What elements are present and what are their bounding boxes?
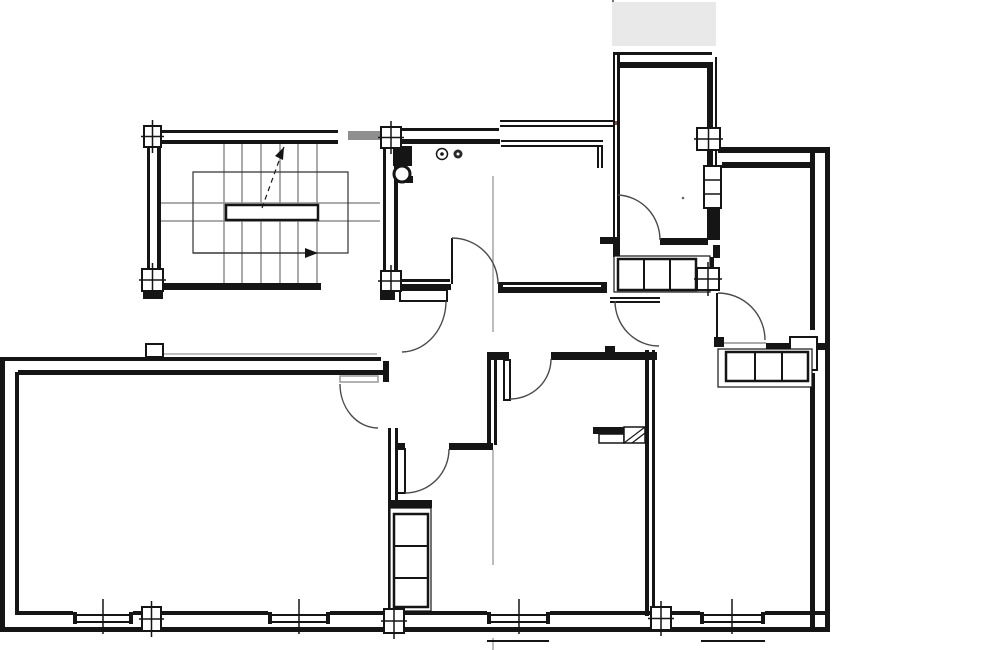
wall-segment	[160, 611, 268, 615]
scan-artifact	[682, 197, 685, 200]
door-lintel	[348, 131, 382, 140]
wall-segment	[397, 128, 499, 131]
wall-segment	[722, 162, 814, 168]
door-leaf	[400, 290, 447, 301]
wall-segment	[613, 243, 620, 257]
wall-segment	[498, 282, 607, 285]
wall-segment	[395, 139, 500, 144]
wall-segment	[551, 352, 657, 360]
wall-segment	[613, 52, 712, 55]
wall-segment	[133, 611, 142, 615]
chimney-notch	[146, 344, 163, 357]
wall-segment	[765, 611, 830, 615]
wall-segment	[550, 611, 652, 615]
window-sill	[487, 640, 549, 642]
wall-segment	[160, 283, 321, 290]
wall-segment	[613, 55, 615, 240]
wall-segment	[18, 370, 388, 375]
floor-plan-canvas	[0, 0, 1000, 650]
wall-segment	[498, 282, 503, 293]
door-arc	[402, 301, 446, 352]
wall-segment	[397, 279, 450, 282]
door-hinge-stub	[605, 346, 615, 353]
wall-segment	[15, 372, 19, 615]
wall-segment	[0, 357, 381, 361]
wall-segment	[383, 361, 389, 382]
window-post	[326, 612, 330, 624]
wall-segment	[494, 352, 497, 445]
wall-segment	[487, 352, 491, 445]
stove-burner-dot	[457, 153, 460, 156]
flue-fixture	[593, 427, 624, 434]
door-arc	[405, 449, 449, 493]
flue-fixture	[599, 434, 624, 443]
window-post	[268, 612, 272, 624]
wall-segment	[147, 140, 338, 144]
wall-segment	[498, 287, 607, 293]
radiator-inner	[394, 514, 428, 607]
window-frame	[704, 166, 721, 208]
radiator-top-plate	[391, 500, 432, 508]
wall-segment	[617, 55, 620, 240]
wall-segment	[147, 130, 338, 133]
door-arc	[340, 384, 378, 428]
wall-segment	[0, 357, 5, 632]
stair-arrow-head	[305, 248, 318, 258]
stove-burner-dot	[440, 152, 444, 156]
wall-segment	[652, 350, 655, 616]
wall-segment	[330, 611, 385, 615]
door-leaf	[504, 360, 510, 400]
wall-segment	[645, 350, 649, 616]
radiator-inner	[618, 259, 696, 290]
radiator-inner	[726, 352, 808, 381]
window-post	[700, 612, 704, 624]
door-arc	[615, 301, 659, 346]
door-arc	[618, 195, 660, 240]
wall-segment	[810, 373, 815, 630]
window-post	[761, 612, 765, 624]
wall-segment	[380, 291, 395, 300]
door-leaf	[397, 449, 405, 493]
wall-segment	[147, 143, 150, 273]
scan-artifact	[612, 2, 716, 46]
wall-segment	[0, 627, 830, 632]
wall-segment	[810, 153, 815, 330]
door-lintel	[340, 376, 378, 382]
door-arc	[510, 359, 551, 399]
window-sill	[701, 640, 765, 642]
wall-segment	[19, 611, 73, 615]
wall-segment	[672, 611, 700, 615]
floor-plan-page	[0, 0, 1000, 650]
window-post	[73, 612, 77, 624]
wall-segment	[718, 147, 830, 153]
wall-segment	[825, 147, 830, 632]
wall-segment	[660, 238, 708, 245]
window-post	[546, 612, 550, 624]
door-arc	[718, 293, 765, 340]
wall-segment	[713, 245, 720, 258]
window-post	[129, 612, 133, 624]
wall-segment	[618, 62, 708, 68]
wall-segment	[157, 143, 161, 273]
stair-landing	[226, 205, 318, 220]
wall-segment	[449, 443, 493, 450]
door-arc	[452, 238, 498, 284]
window-post	[487, 612, 491, 624]
door-hinge-stub	[714, 337, 724, 347]
wall-segment	[601, 282, 607, 293]
wall-segment	[383, 146, 386, 273]
sink-basin	[394, 166, 410, 182]
wall-segment	[707, 208, 720, 240]
